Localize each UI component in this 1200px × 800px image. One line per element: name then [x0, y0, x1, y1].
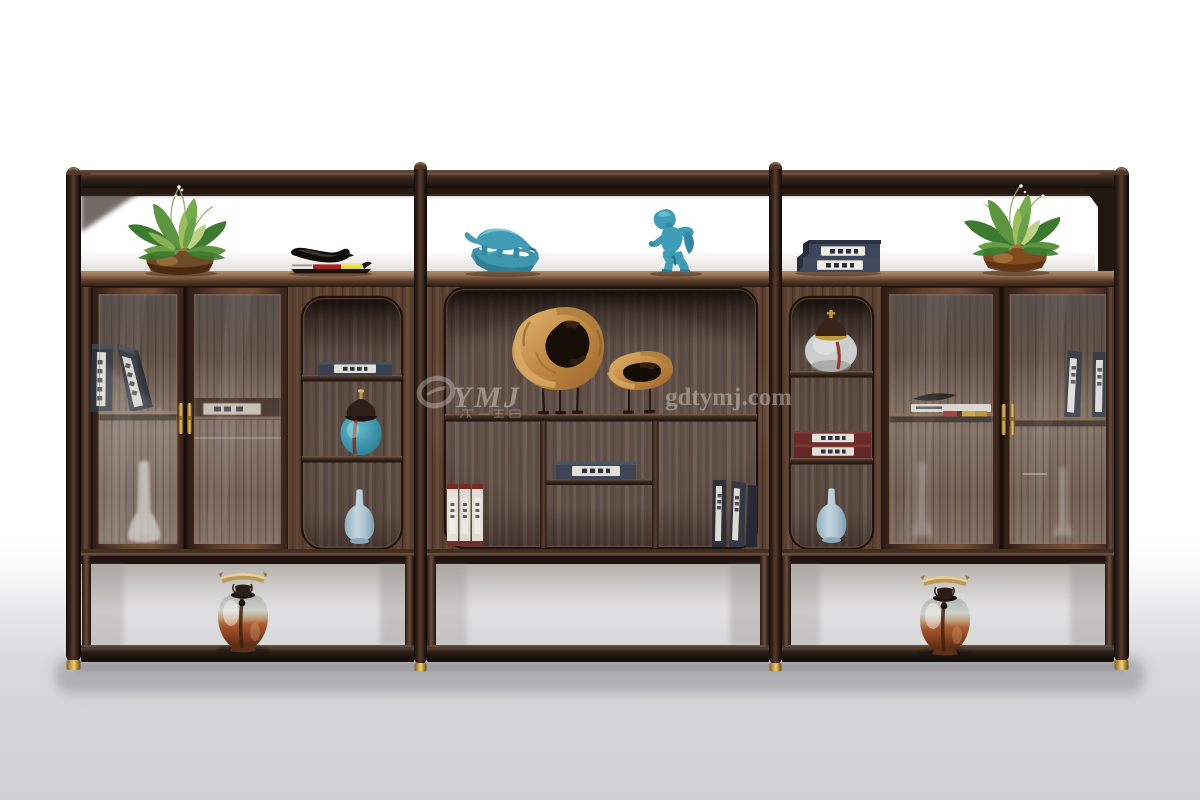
svg-text:gdtymj.com: gdtymj.com	[665, 384, 792, 411]
svg-text:YMJ: YMJ	[453, 381, 522, 414]
